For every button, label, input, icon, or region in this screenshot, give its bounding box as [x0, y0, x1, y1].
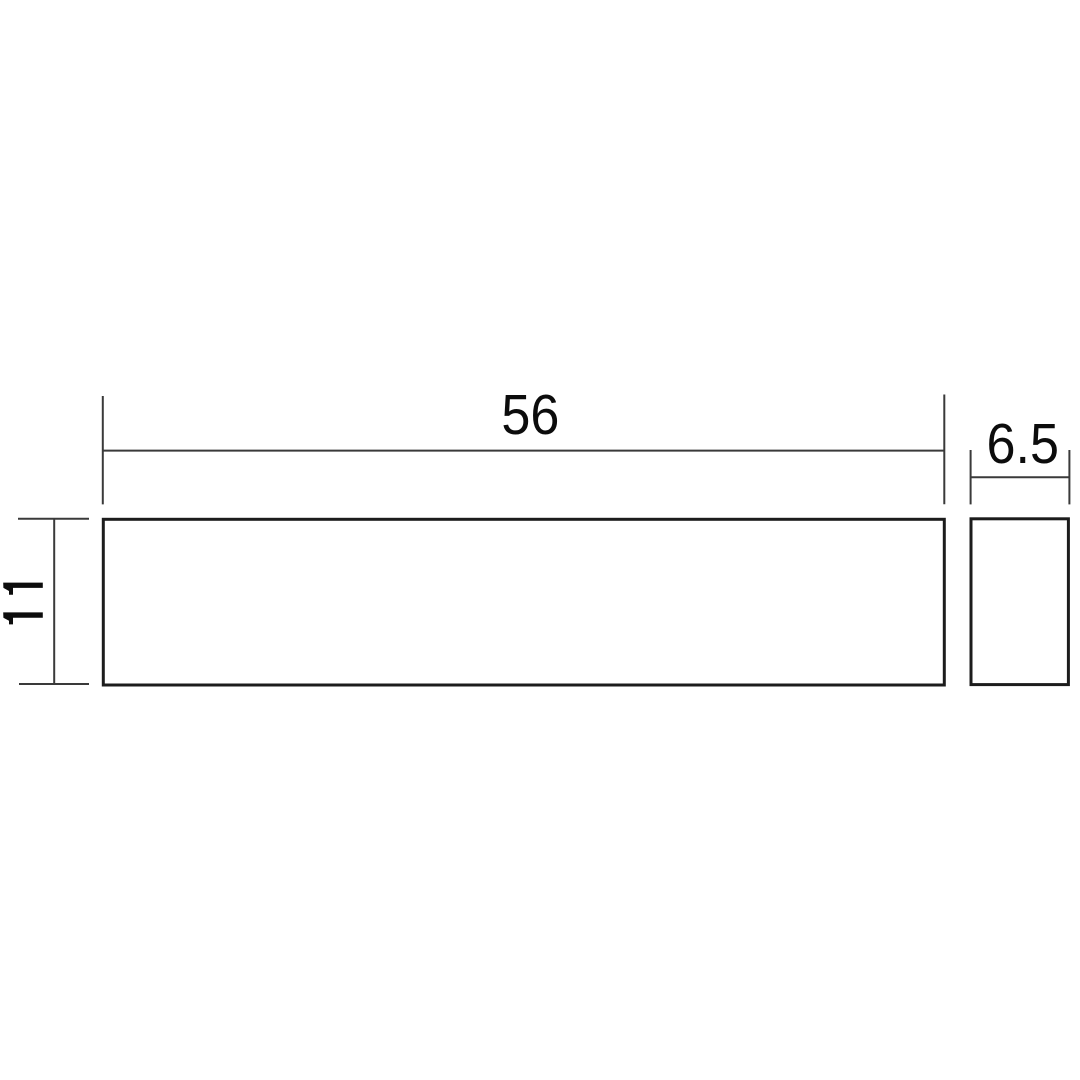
svg-text:6.5: 6.5: [987, 412, 1060, 476]
svg-text:56: 56: [501, 383, 559, 447]
